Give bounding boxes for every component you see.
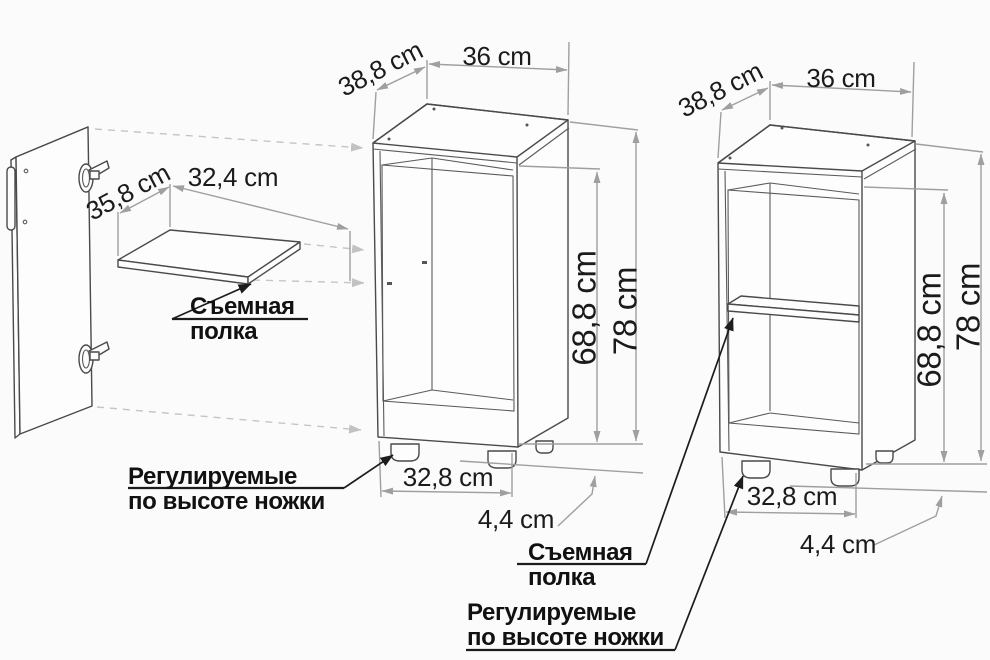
door-hinge-bottom: [79, 342, 109, 373]
dim-shelf-width: 32,4 cm: [188, 164, 278, 190]
dim-assembled-height: 78 cm: [952, 263, 985, 351]
diagram-linework: [0, 0, 990, 660]
callout-removable-shelf-right: Съемная полка: [528, 540, 633, 590]
dim-assembled-base-width: 32,8 cm: [747, 483, 837, 509]
callout-adjustable-feet-right: Регулируемые по высоте ножки: [467, 600, 664, 650]
callout-line: полка: [528, 565, 633, 590]
dim-open-base-width: 32,8 cm: [403, 464, 493, 490]
dim-open-height: 78 cm: [609, 267, 642, 355]
callout-line: Съемная: [190, 294, 295, 319]
callout-line: Регулируемые: [128, 464, 325, 489]
callout-line: по высоте ножки: [467, 625, 664, 650]
cabinet-assembled-body: [718, 125, 916, 486]
callout-line: полка: [190, 319, 295, 344]
callout-line: по высоте ножки: [128, 489, 325, 514]
callout-adjustable-feet-left: Регулируемые по высоте ножки: [128, 464, 325, 514]
dim-open-inner-height: 68,8 cm: [568, 250, 601, 365]
dim-assembled-feet-height: 4,4 cm: [800, 531, 876, 557]
cabinet-open-body: [373, 104, 569, 468]
dim-open-width: 36 cm: [462, 43, 531, 69]
shelf-panel: [118, 230, 300, 284]
callout-line: Регулируемые: [467, 600, 664, 625]
callout-removable-shelf-left: Съемная полка: [190, 294, 295, 344]
callout-line: Съемная: [528, 540, 633, 565]
dim-open-feet-height: 4,4 cm: [478, 506, 554, 532]
dim-assembled-width: 36 cm: [806, 65, 875, 91]
door-panel: [7, 127, 109, 438]
dim-assembled-inner-height: 68,8 cm: [913, 272, 946, 387]
door-handle: [7, 167, 15, 230]
furniture-diagram: 35,8 cm 32,4 cm 38,8 cm 36 cm 68,8 cm 78…: [0, 0, 990, 660]
